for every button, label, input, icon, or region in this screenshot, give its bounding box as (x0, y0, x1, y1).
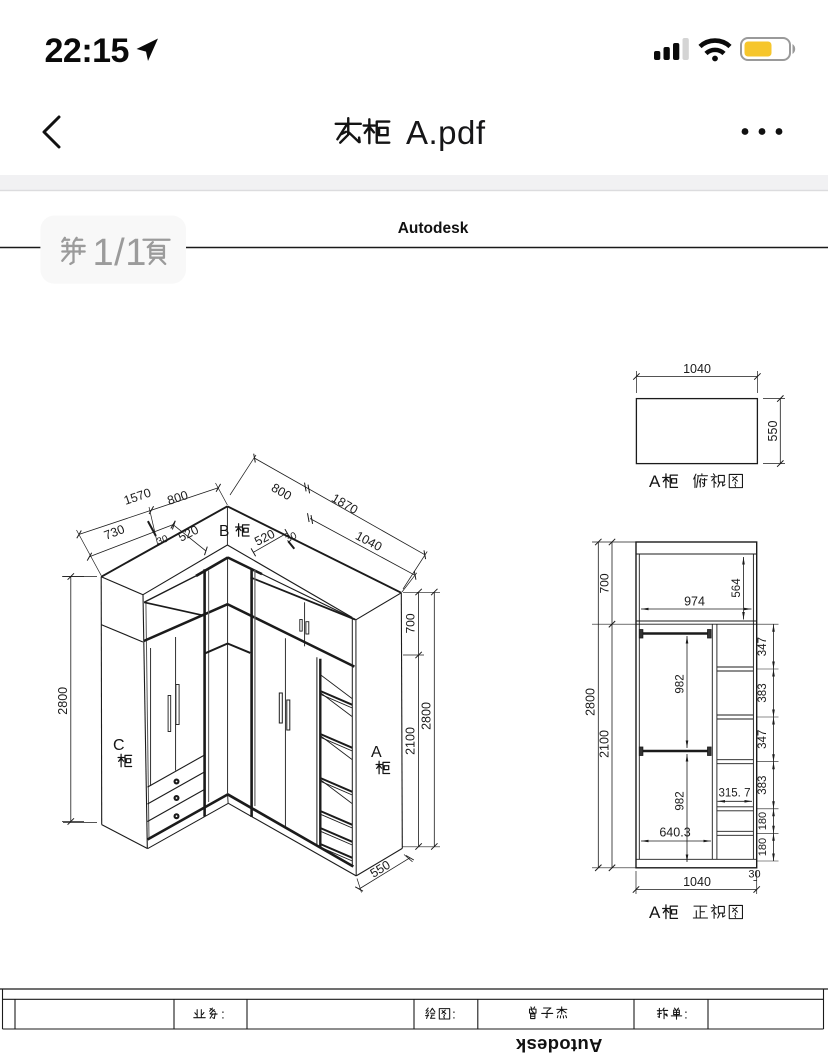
svg-text:2800: 2800 (419, 702, 433, 730)
svg-text:564: 564 (731, 578, 743, 598)
svg-text:700: 700 (404, 613, 418, 633)
svg-text:1570: 1570 (122, 486, 153, 508)
svg-text::: : (452, 1007, 456, 1022)
svg-text:383: 383 (757, 776, 769, 795)
svg-text:347: 347 (757, 637, 769, 656)
svg-text:1870: 1870 (329, 491, 360, 517)
svg-text:800: 800 (166, 488, 190, 508)
svg-text:30: 30 (284, 530, 299, 545)
svg-text:982: 982 (675, 791, 687, 810)
svg-text:800: 800 (269, 481, 294, 504)
svg-text:347: 347 (757, 730, 769, 749)
svg-text:1/1: 1/1 (93, 232, 147, 274)
svg-text:550: 550 (368, 858, 393, 881)
svg-text:30: 30 (748, 869, 760, 881)
svg-text:974: 974 (684, 595, 705, 609)
svg-text:383: 383 (757, 683, 769, 702)
svg-text:700: 700 (597, 573, 611, 593)
svg-text:180: 180 (757, 838, 769, 856)
svg-text:2100: 2100 (597, 730, 611, 758)
svg-text:1040: 1040 (683, 362, 711, 376)
svg-text::: : (221, 1007, 225, 1022)
svg-text:640.3: 640.3 (659, 826, 690, 840)
svg-text:A: A (649, 903, 661, 922)
svg-text:C: C (113, 737, 125, 754)
svg-text:2800: 2800 (56, 687, 70, 715)
svg-text:Autodesk: Autodesk (515, 1035, 602, 1056)
svg-text:180: 180 (757, 812, 769, 830)
svg-text::: : (684, 1007, 688, 1022)
svg-text:B: B (219, 523, 229, 540)
svg-text:2100: 2100 (404, 727, 418, 755)
svg-text:A.pdf: A.pdf (406, 114, 486, 151)
svg-text:1040: 1040 (683, 875, 711, 889)
svg-text:315. 7: 315. 7 (719, 787, 751, 799)
svg-text:520: 520 (176, 523, 201, 545)
svg-text:22:15: 22:15 (45, 32, 129, 70)
svg-text:A: A (371, 744, 382, 761)
svg-text:2800: 2800 (584, 688, 598, 716)
svg-text:A: A (649, 472, 661, 491)
svg-text:Autodesk: Autodesk (398, 220, 469, 237)
svg-text:30: 30 (155, 533, 170, 547)
svg-text:982: 982 (675, 674, 687, 693)
svg-text:550: 550 (766, 421, 780, 442)
